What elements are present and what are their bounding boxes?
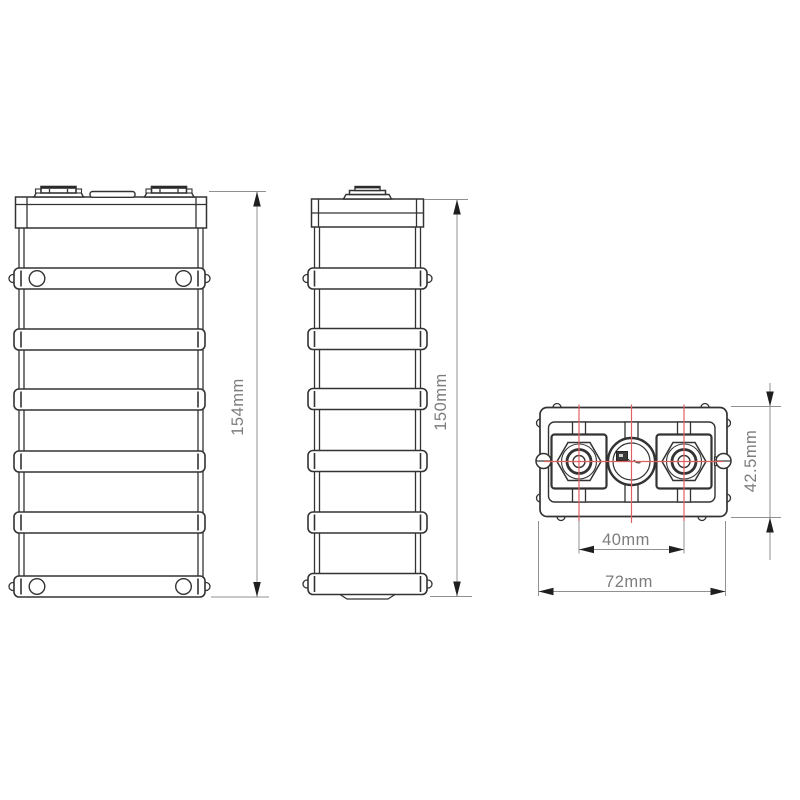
side-rib [308, 451, 427, 472]
dimension-top-thickness: 42.5mm [731, 383, 781, 560]
drawing-canvas: 154mm [0, 0, 800, 800]
dim-arrow-down-icon [253, 582, 261, 597]
front-rib-strap-bottom [14, 576, 205, 597]
front-ribs [14, 268, 205, 597]
side-rib-ears [303, 275, 432, 589]
dim-arrow-right-icon [669, 546, 684, 554]
front-rib-strap-top [14, 268, 205, 289]
front-rib [14, 512, 205, 533]
side-view [303, 186, 432, 599]
side-lid [312, 199, 424, 227]
front-view [9, 186, 210, 597]
front-vent-cap [90, 192, 135, 198]
dim-arrow-up-icon [453, 200, 461, 215]
dimension-terminal-pitch: 40mm [579, 521, 684, 554]
dim-arrow-left-icon [539, 588, 554, 596]
side-rib-strap-top [308, 268, 427, 289]
dim-arrow-down-icon [766, 392, 774, 407]
front-rib [14, 389, 205, 410]
dim-arrow-right-icon [711, 588, 726, 596]
side-terminal [344, 186, 392, 199]
dim-arrow-up-icon [766, 518, 774, 533]
technical-drawing-svg: 154mm [0, 0, 800, 800]
front-terminal-negative [145, 186, 195, 197]
top-view [536, 404, 732, 524]
dimension-label-terminal-pitch: 40mm [602, 531, 650, 549]
side-ribs [308, 268, 427, 595]
side-rib [308, 512, 427, 533]
front-rib [14, 329, 205, 350]
side-rib [308, 389, 427, 410]
front-terminal-positive [34, 186, 84, 197]
front-rib-ears [9, 275, 210, 591]
dimension-label-front-height: 154mm [229, 378, 247, 436]
side-rib [308, 329, 427, 350]
dimension-side-height: 150mm [424, 200, 472, 597]
dim-arrow-left-icon [579, 546, 594, 554]
front-rib [14, 451, 205, 472]
side-rib-strap-bottom [308, 574, 427, 595]
dimension-front-height: 154mm [209, 192, 269, 598]
dimension-label-overall-width: 72mm [605, 573, 653, 591]
dim-arrow-down-icon [453, 582, 461, 597]
dimension-label-top-thickness: 42.5mm [742, 430, 760, 493]
dim-arrow-up-icon [253, 192, 261, 207]
dimension-label-side-height: 150mm [432, 373, 450, 431]
front-lid [16, 197, 207, 228]
